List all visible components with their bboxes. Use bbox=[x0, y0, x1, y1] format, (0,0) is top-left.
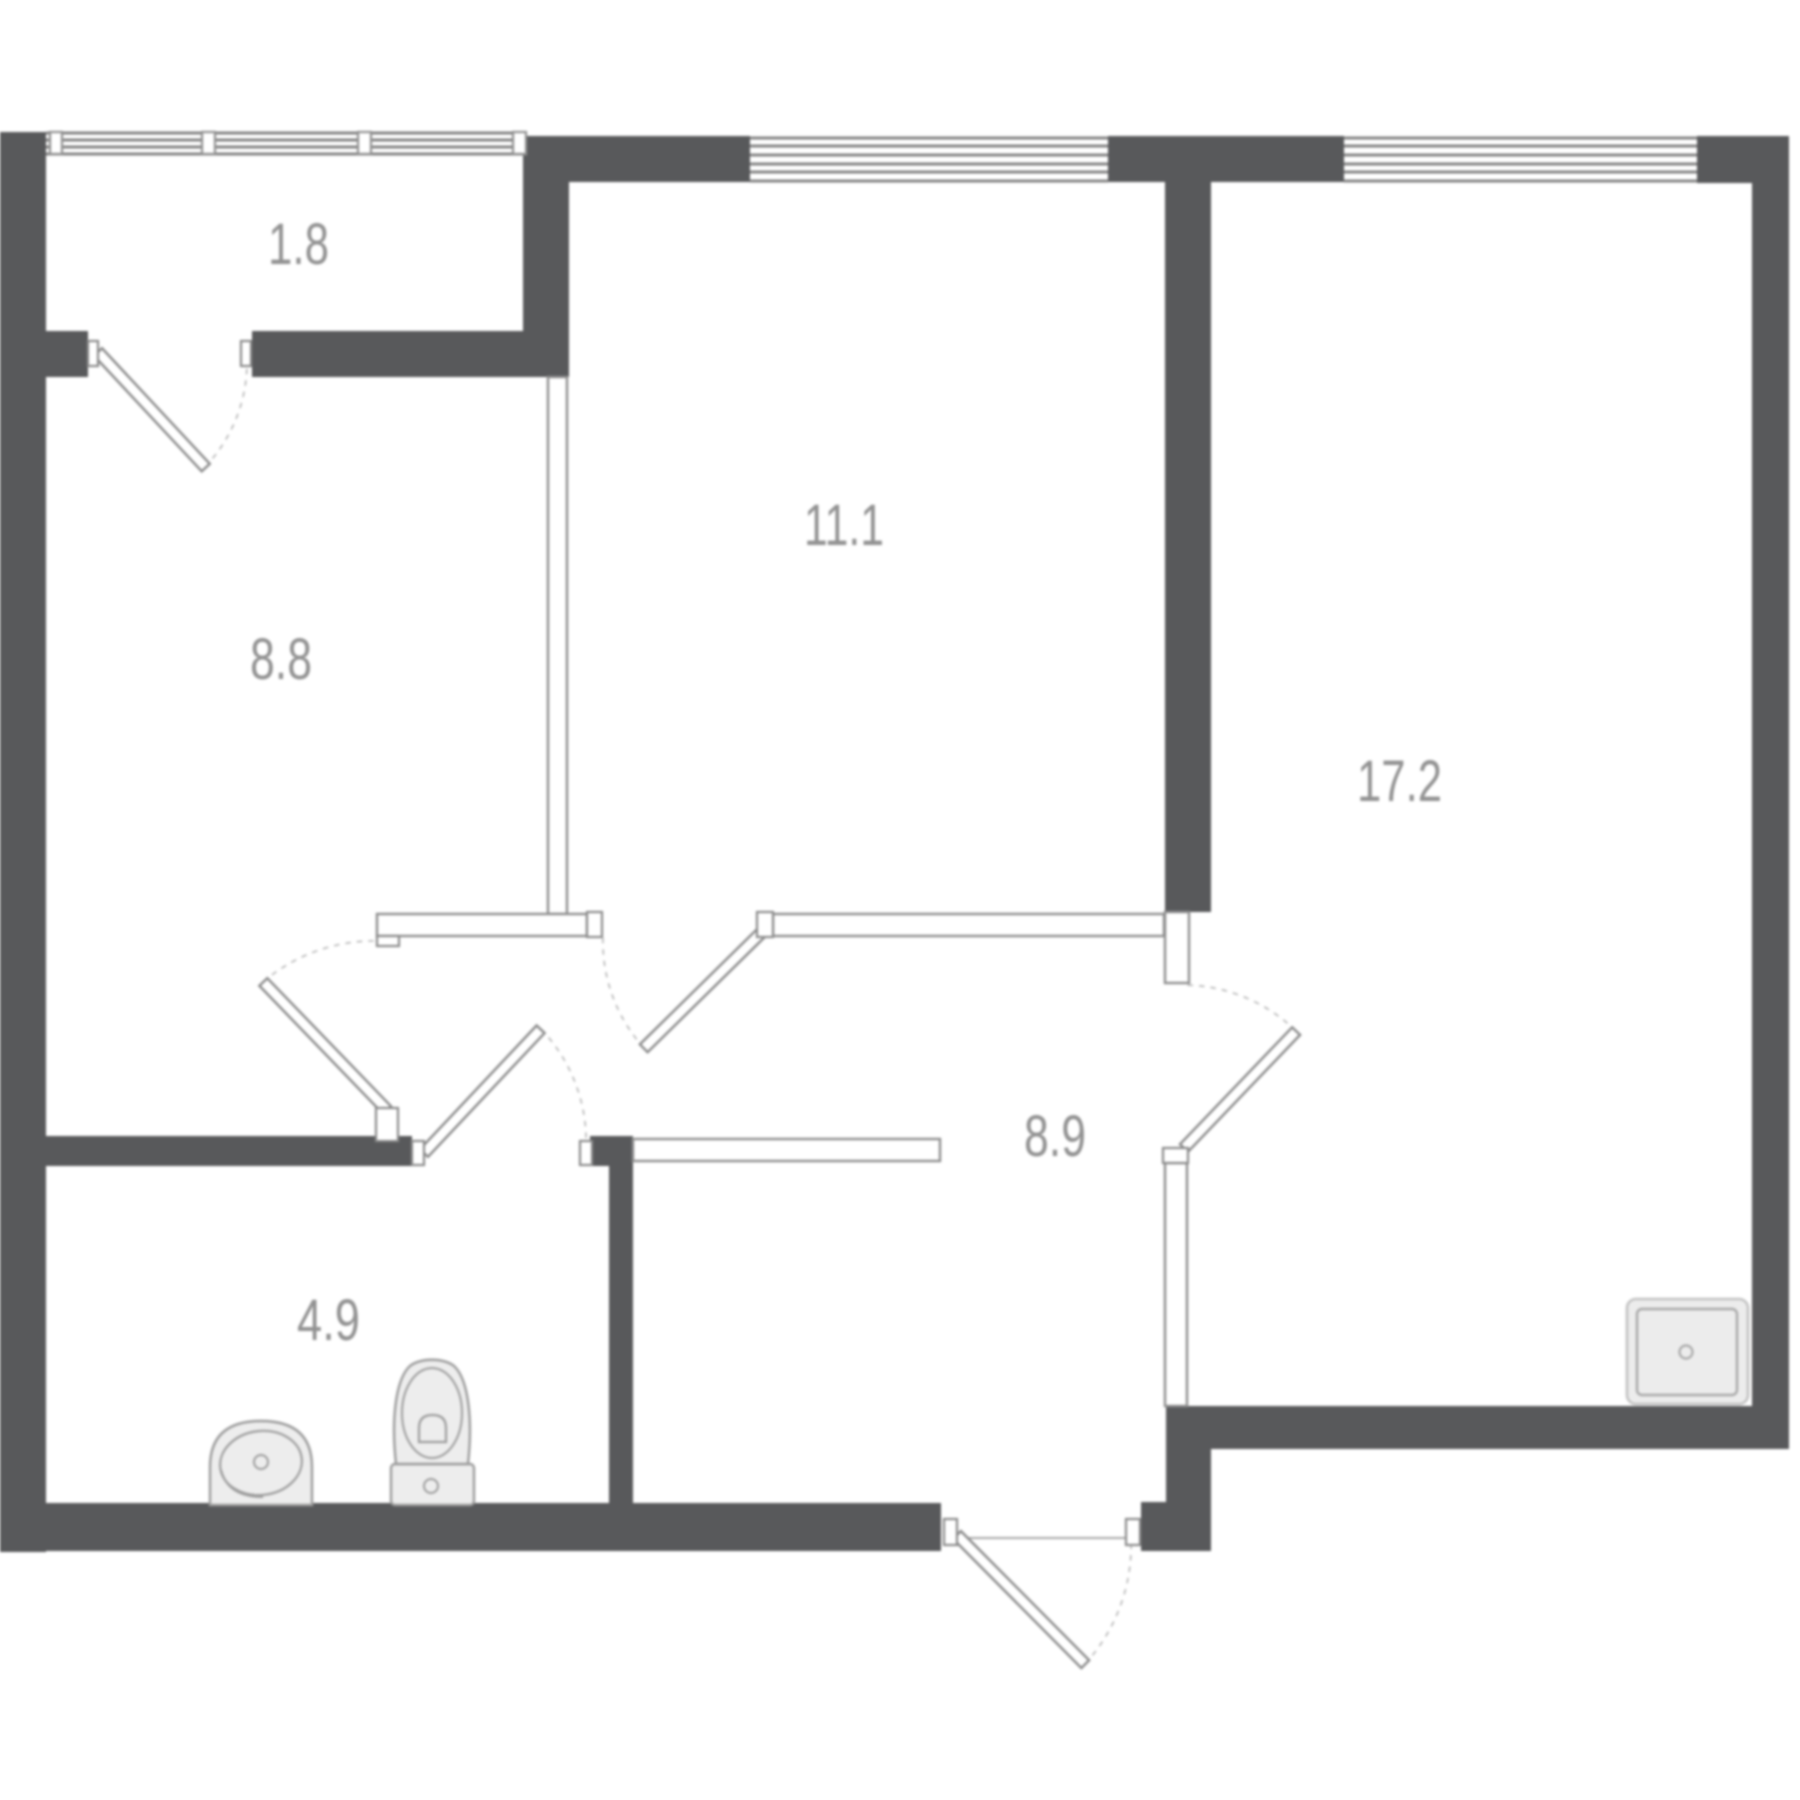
svg-text:8.9: 8.9 bbox=[1024, 1104, 1086, 1169]
svg-text:17.2: 17.2 bbox=[1357, 749, 1442, 814]
svg-text:1.8: 1.8 bbox=[268, 212, 329, 277]
svg-text:11.1: 11.1 bbox=[804, 493, 884, 558]
svg-text:8.8: 8.8 bbox=[250, 627, 312, 692]
svg-text:4.9: 4.9 bbox=[297, 1288, 360, 1353]
